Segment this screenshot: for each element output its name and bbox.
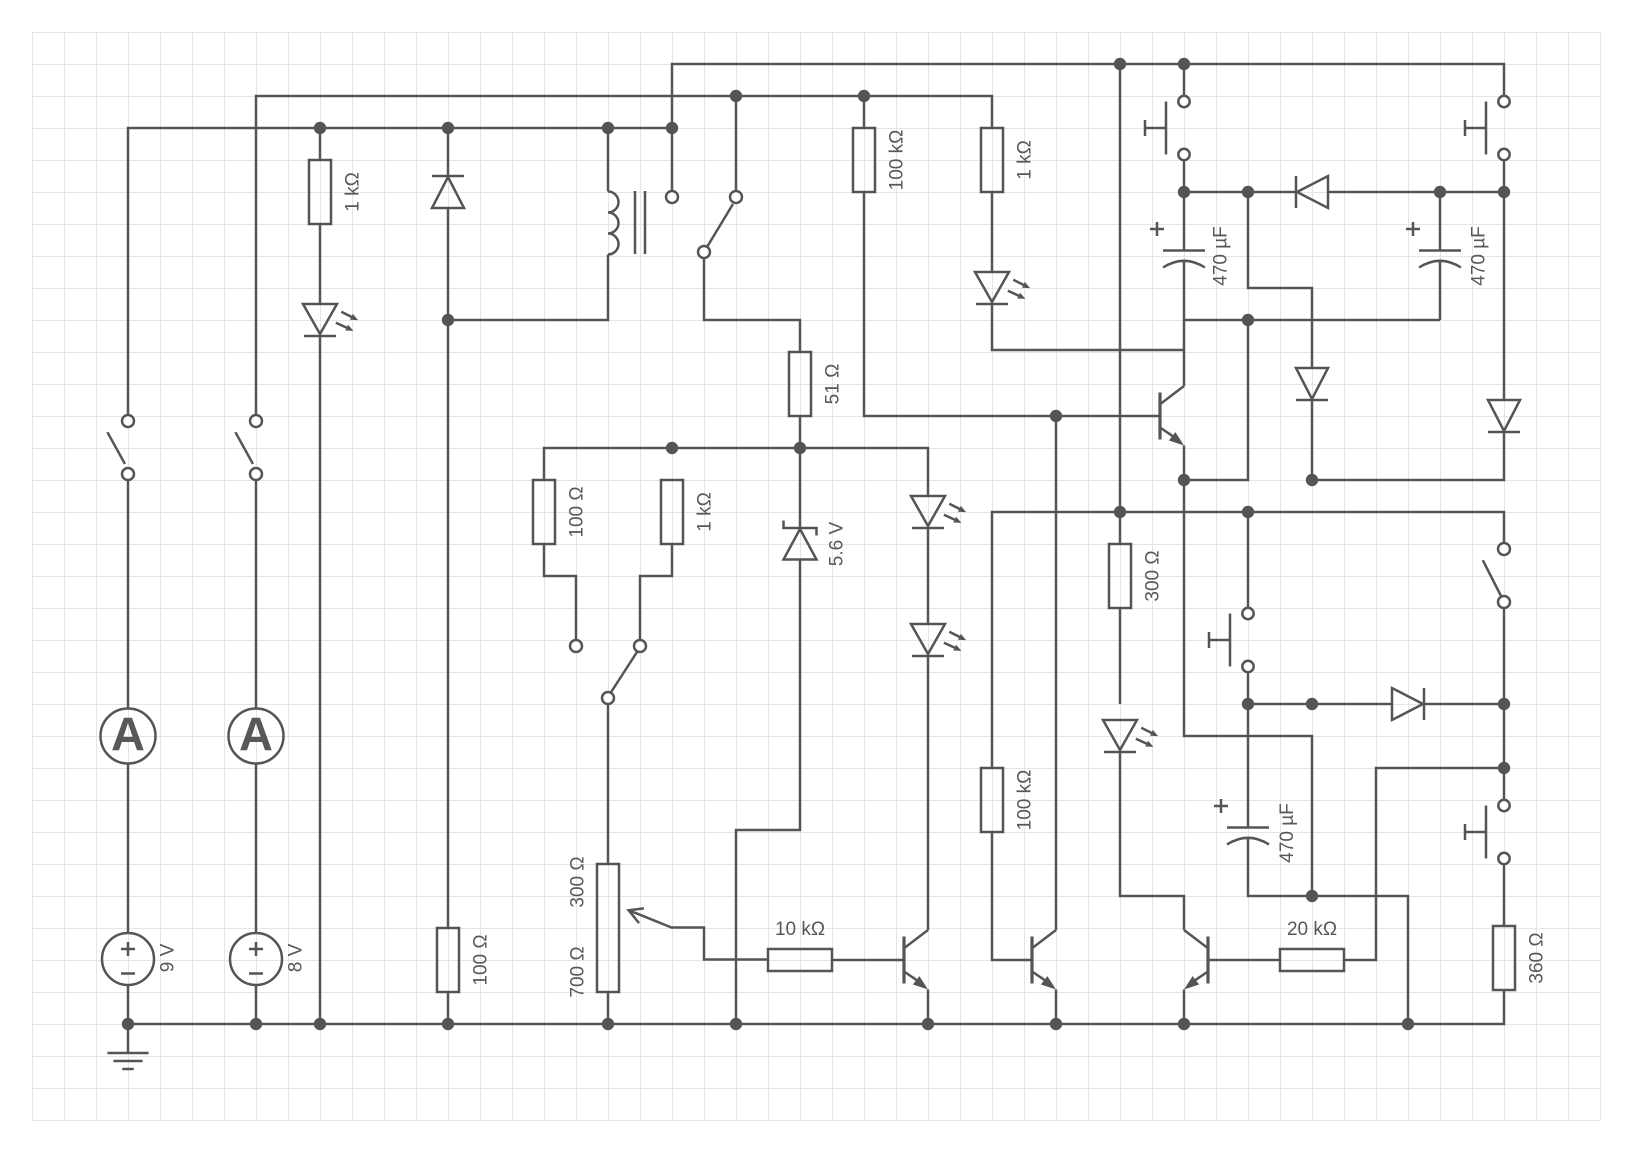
svg-text:100 Ω: 100 Ω — [471, 934, 492, 985]
svg-text:300 Ω: 300 Ω — [1143, 550, 1164, 601]
svg-text:300 Ω: 300 Ω — [568, 856, 589, 907]
svg-text:10 kΩ: 10 kΩ — [775, 919, 825, 940]
svg-text:51 Ω: 51 Ω — [823, 364, 844, 405]
svg-text:5.6 V: 5.6 V — [827, 521, 848, 566]
svg-text:1 kΩ: 1 kΩ — [343, 172, 364, 212]
svg-text:20 kΩ: 20 kΩ — [1287, 919, 1337, 940]
svg-text:470 µF: 470 µF — [1469, 226, 1490, 286]
svg-text:1 kΩ: 1 kΩ — [1015, 140, 1036, 180]
svg-text:1 kΩ: 1 kΩ — [695, 492, 716, 532]
svg-text:A: A — [111, 708, 145, 761]
svg-text:100 kΩ: 100 kΩ — [1015, 770, 1036, 831]
svg-text:700 Ω: 700 Ω — [568, 946, 589, 997]
svg-text:A: A — [239, 708, 273, 761]
svg-text:100 Ω: 100 Ω — [567, 486, 588, 537]
svg-text:100 kΩ: 100 kΩ — [887, 130, 908, 191]
svg-text:470 µF: 470 µF — [1277, 803, 1298, 863]
svg-text:9 V: 9 V — [158, 943, 179, 972]
svg-text:8 V: 8 V — [286, 943, 307, 972]
svg-text:360 Ω: 360 Ω — [1527, 932, 1548, 983]
svg-text:470 µF: 470 µF — [1211, 226, 1232, 286]
